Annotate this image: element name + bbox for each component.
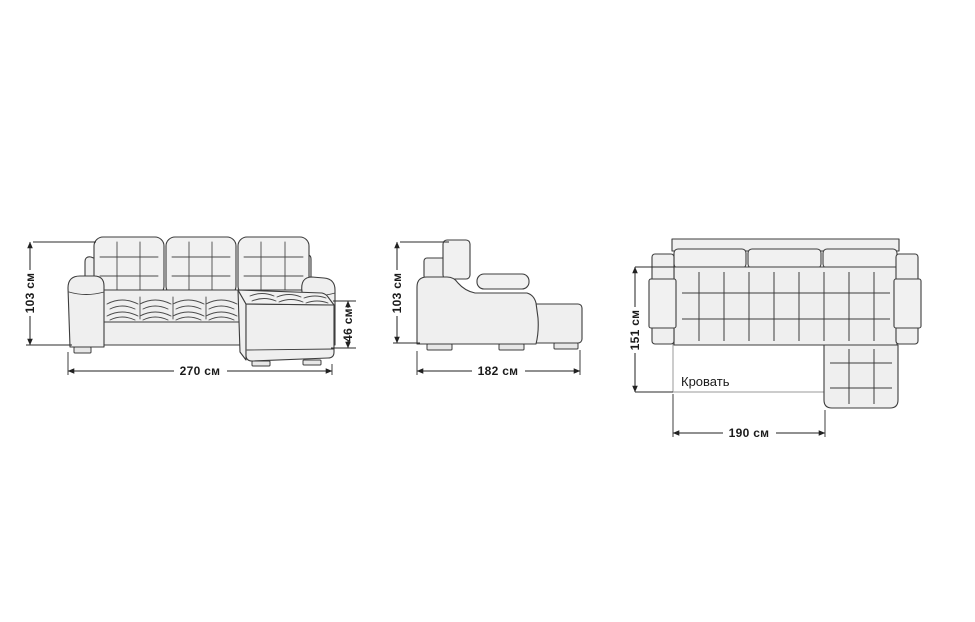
front-chaise <box>238 290 334 366</box>
side-feet <box>427 343 578 350</box>
top-back-cushions <box>674 249 897 268</box>
bed-label: Кровать <box>681 374 730 389</box>
top-armrest-right <box>894 254 921 344</box>
diagram-svg: 103 см 270 см 46 см 103 см 182 см <box>0 0 975 622</box>
side-view: 103 см 182 см <box>389 240 582 378</box>
top-chaise <box>824 345 898 408</box>
top-armrest-left <box>649 254 676 344</box>
front-back-cushions <box>94 237 309 295</box>
front-width-label: 270 см <box>180 364 221 378</box>
sofa-dimension-diagram: 103 см 270 см 46 см 103 см 182 см <box>0 0 975 622</box>
front-height-label: 103 см <box>23 273 37 314</box>
side-depth-label: 182 см <box>478 364 519 378</box>
side-headrest-tall <box>443 240 470 279</box>
side-seat-pillow <box>477 274 529 289</box>
top-seat <box>674 267 897 345</box>
front-seat-height-label: 46 см <box>341 308 355 342</box>
top-bed-width-label: 190 см <box>729 426 770 440</box>
front-foot-left <box>74 347 91 353</box>
front-armrest-left <box>68 276 104 347</box>
side-height-label: 103 см <box>390 273 404 314</box>
front-chaise-foot-left <box>252 361 270 366</box>
top-view: 151 см Кровать 190 см <box>627 239 921 440</box>
front-chaise-foot-right <box>303 360 321 365</box>
top-bed-depth-label: 151 см <box>628 310 642 351</box>
front-view: 103 см 270 см 46 см <box>22 237 356 378</box>
